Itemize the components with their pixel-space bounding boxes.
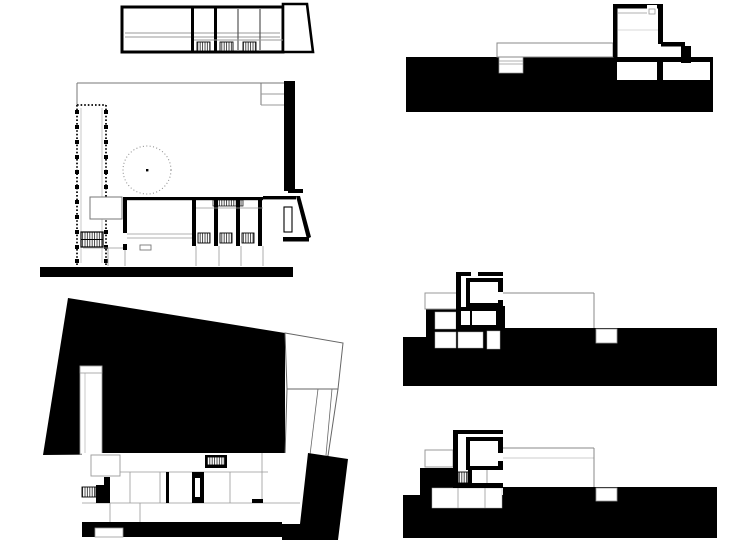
section-bottom-right	[403, 430, 717, 538]
section-middle-right	[403, 272, 717, 386]
section-top-right	[406, 4, 713, 112]
architectural-drawing-sheet	[0, 0, 750, 550]
drawing-canvas-svg	[0, 0, 750, 550]
plan-main-level	[40, 81, 311, 277]
plan-upper-strip	[122, 4, 313, 52]
plan-site-lower-level	[43, 298, 348, 540]
